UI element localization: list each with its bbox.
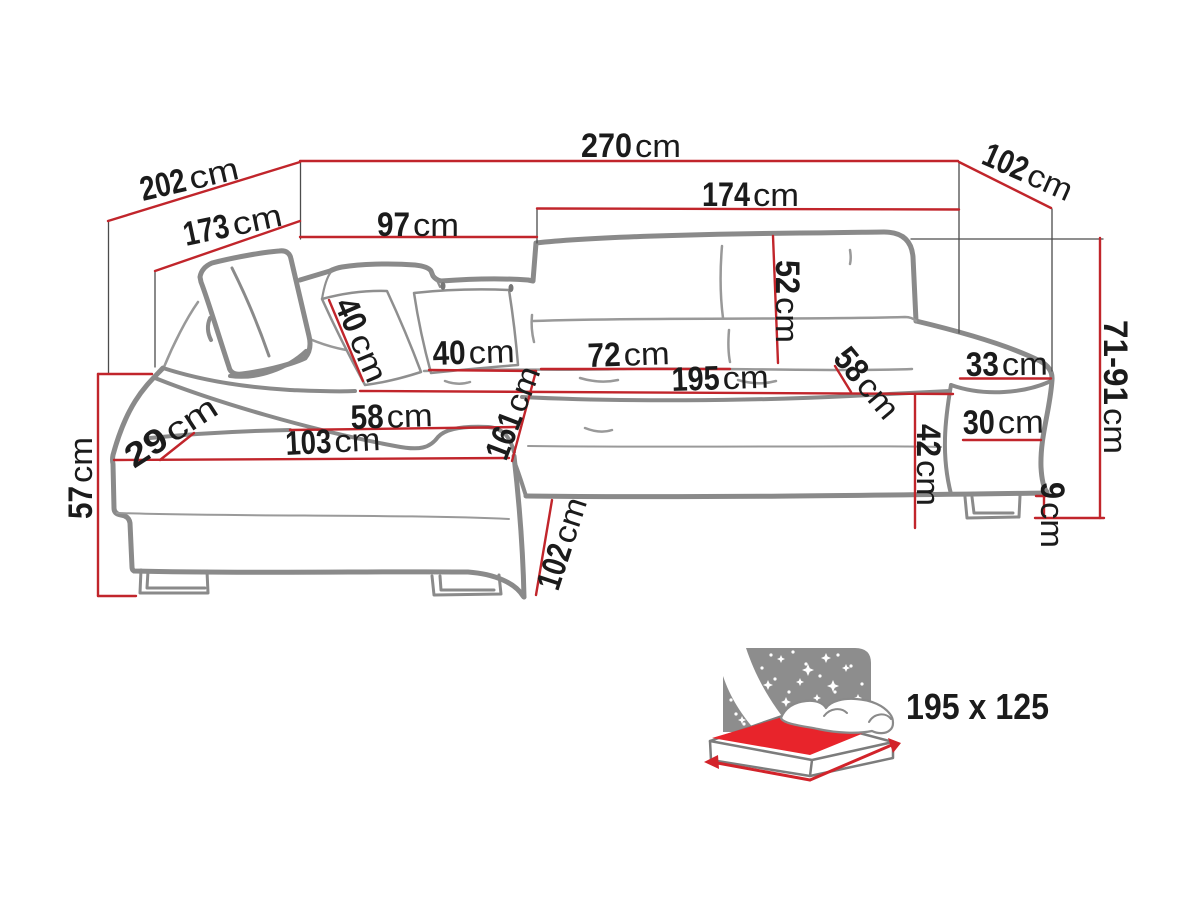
svg-text:cm: cm (1001, 346, 1048, 383)
svg-text:cm: cm (769, 297, 805, 343)
svg-text:9: 9 (1033, 482, 1071, 499)
svg-text:72: 72 (587, 336, 621, 375)
svg-text:174: 174 (702, 176, 750, 214)
svg-text:cm: cm (722, 359, 769, 397)
svg-text:97: 97 (377, 206, 410, 244)
svg-text:102: 102 (529, 539, 579, 594)
svg-text:cm: cm (997, 404, 1044, 441)
svg-text:30: 30 (962, 403, 995, 442)
svg-text:cm: cm (623, 335, 670, 373)
svg-text:71-91: 71-91 (1096, 320, 1134, 405)
svg-text:161: 161 (478, 406, 531, 464)
svg-text:40: 40 (432, 334, 466, 373)
svg-text:103: 103 (284, 423, 332, 463)
svg-text:cm: cm (386, 397, 433, 435)
svg-text:cm: cm (333, 421, 381, 459)
svg-text:cm: cm (1034, 502, 1070, 548)
svg-text:57: 57 (62, 486, 100, 519)
svg-text:cm: cm (910, 460, 946, 506)
svg-text:33: 33 (965, 345, 999, 384)
svg-text:cm: cm (413, 207, 459, 243)
svg-text:202: 202 (136, 161, 189, 208)
svg-text:195: 195 (671, 359, 720, 399)
svg-text:cm: cm (63, 437, 99, 483)
svg-text:52: 52 (768, 260, 806, 294)
svg-text:cm: cm (1097, 408, 1133, 454)
svg-text:cm: cm (468, 333, 515, 371)
svg-text:cm: cm (229, 197, 285, 243)
svg-text:270: 270 (581, 127, 632, 165)
svg-text:cm: cm (635, 128, 681, 164)
svg-text:cm: cm (185, 150, 242, 196)
svg-text:cm: cm (1022, 156, 1079, 208)
svg-text:cm: cm (753, 177, 799, 213)
svg-text:42: 42 (909, 424, 947, 457)
svg-text:195 x 125: 195 x 125 (906, 686, 1049, 727)
